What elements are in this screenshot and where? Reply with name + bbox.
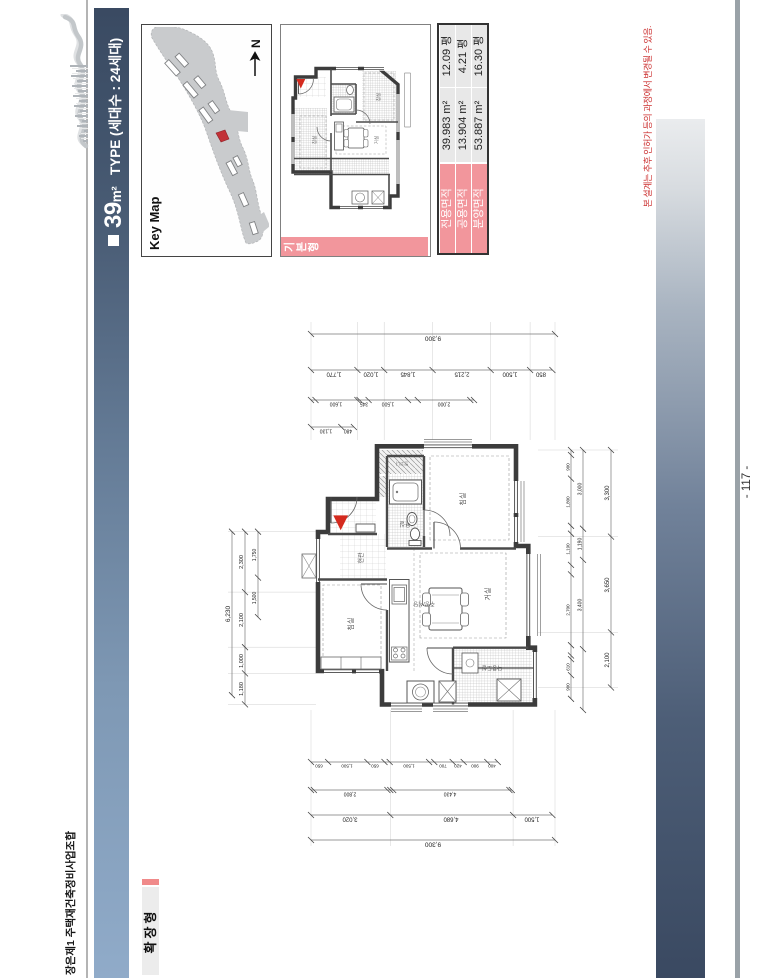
svg-text:1,500: 1,500 bbox=[382, 401, 395, 407]
svg-text:3,020: 3,020 bbox=[342, 816, 358, 822]
svg-text:2,800: 2,800 bbox=[344, 791, 357, 797]
svg-text:3,000: 3,000 bbox=[578, 483, 584, 496]
svg-text:침실: 침실 bbox=[375, 93, 381, 101]
svg-text:420: 420 bbox=[454, 764, 462, 769]
svg-text:침실: 침실 bbox=[311, 136, 317, 144]
svg-text:9,300: 9,300 bbox=[424, 335, 441, 342]
svg-text:900: 900 bbox=[566, 463, 571, 471]
svg-text:6,230: 6,230 bbox=[225, 605, 232, 622]
svg-text:1,000: 1,000 bbox=[239, 654, 245, 668]
svg-text:1,020: 1,020 bbox=[363, 371, 379, 377]
svg-text:2,000: 2,000 bbox=[438, 401, 451, 407]
svg-text:900: 900 bbox=[471, 764, 479, 769]
svg-text:2,100: 2,100 bbox=[239, 613, 245, 627]
svg-text:거실: 거실 bbox=[483, 588, 492, 601]
svg-text:850: 850 bbox=[535, 371, 546, 377]
svg-text:1,600: 1,600 bbox=[330, 401, 343, 407]
svg-text:2,700: 2,700 bbox=[566, 604, 571, 616]
svg-text:1,190: 1,190 bbox=[578, 538, 584, 551]
svg-text:침실: 침실 bbox=[346, 618, 355, 631]
svg-text:2,215: 2,215 bbox=[454, 371, 470, 377]
svg-text:1,500: 1,500 bbox=[524, 816, 540, 822]
svg-text:650: 650 bbox=[371, 764, 379, 769]
svg-text:900: 900 bbox=[566, 683, 571, 691]
svg-text:3,300: 3,300 bbox=[605, 485, 611, 501]
svg-text:1,750: 1,750 bbox=[252, 549, 258, 562]
svg-text:다용도실: 다용도실 bbox=[482, 664, 502, 672]
svg-text:발코니: 발코니 bbox=[396, 460, 408, 467]
svg-text:4,430: 4,430 bbox=[444, 791, 457, 797]
svg-text:N: N bbox=[249, 39, 263, 48]
svg-text:현관: 현관 bbox=[357, 552, 365, 564]
svg-text:1,130: 1,130 bbox=[320, 428, 333, 434]
svg-text:1,500: 1,500 bbox=[252, 592, 258, 605]
svg-text:2,300: 2,300 bbox=[239, 555, 245, 569]
svg-text:1,190: 1,190 bbox=[566, 543, 571, 555]
svg-text:610: 610 bbox=[566, 663, 571, 671]
svg-text:욕실: 욕실 bbox=[399, 520, 410, 528]
svg-text:3,650: 3,650 bbox=[605, 577, 611, 593]
svg-text:1,500: 1,500 bbox=[403, 764, 415, 769]
svg-text:거실: 거실 bbox=[373, 136, 380, 144]
svg-text:480: 480 bbox=[344, 428, 353, 434]
svg-text:9,300: 9,300 bbox=[424, 841, 441, 848]
svg-text:4,680: 4,680 bbox=[443, 816, 459, 822]
svg-text:345: 345 bbox=[360, 401, 369, 407]
svg-text:400: 400 bbox=[488, 764, 496, 769]
svg-text:1,500: 1,500 bbox=[341, 764, 353, 769]
svg-text:650: 650 bbox=[315, 764, 323, 769]
svg-text:700: 700 bbox=[439, 764, 447, 769]
svg-text:3,400: 3,400 bbox=[578, 599, 584, 612]
svg-text:2,100: 2,100 bbox=[605, 652, 611, 668]
svg-text:침실: 침실 bbox=[458, 493, 467, 506]
svg-text:1,845: 1,845 bbox=[400, 371, 416, 377]
svg-text:1,770: 1,770 bbox=[326, 371, 342, 377]
svg-text:1,500: 1,500 bbox=[502, 371, 518, 377]
svg-text:주방/식당: 주방/식당 bbox=[413, 600, 435, 608]
svg-text:1,180: 1,180 bbox=[239, 682, 245, 696]
svg-text:1,800: 1,800 bbox=[566, 496, 571, 508]
